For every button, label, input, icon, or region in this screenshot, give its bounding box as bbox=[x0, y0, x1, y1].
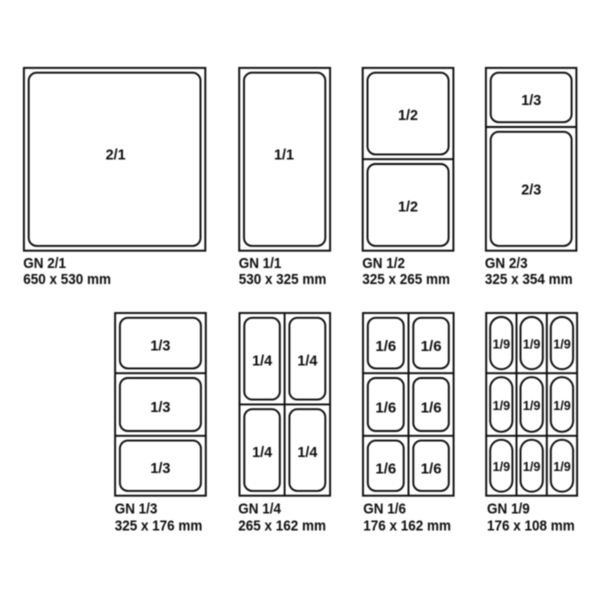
svg-text:325 x 176 mm: 325 x 176 mm bbox=[115, 517, 203, 534]
svg-text:1/9: 1/9 bbox=[523, 336, 541, 351]
svg-text:1/9: 1/9 bbox=[493, 398, 511, 413]
svg-text:1/3: 1/3 bbox=[150, 461, 170, 477]
svg-text:1/6: 1/6 bbox=[375, 338, 396, 355]
svg-text:1/9: 1/9 bbox=[493, 336, 511, 351]
svg-text:GN 1/2: GN 1/2 bbox=[362, 254, 405, 271]
svg-text:265 x 162 mm: 265 x 162 mm bbox=[238, 517, 326, 534]
svg-text:1/2: 1/2 bbox=[398, 199, 418, 215]
svg-text:1/3: 1/3 bbox=[521, 93, 541, 109]
svg-text:1/9: 1/9 bbox=[553, 398, 571, 413]
svg-text:176 x 162 mm: 176 x 162 mm bbox=[363, 517, 451, 534]
svg-text:2/3: 2/3 bbox=[521, 182, 541, 198]
svg-text:1/6: 1/6 bbox=[421, 338, 442, 355]
svg-text:1/9: 1/9 bbox=[493, 459, 511, 474]
svg-text:1/3: 1/3 bbox=[150, 338, 170, 354]
svg-text:1/4: 1/4 bbox=[252, 353, 273, 369]
svg-text:1/9: 1/9 bbox=[523, 459, 541, 474]
svg-text:1/3: 1/3 bbox=[150, 400, 170, 416]
svg-text:1/2: 1/2 bbox=[398, 108, 418, 124]
svg-text:325 x 265 mm: 325 x 265 mm bbox=[362, 271, 450, 288]
svg-text:1/9: 1/9 bbox=[523, 398, 541, 413]
svg-text:GN 1/9: GN 1/9 bbox=[487, 500, 530, 517]
svg-text:GN 1/4: GN 1/4 bbox=[238, 500, 281, 517]
svg-text:1/4: 1/4 bbox=[252, 445, 273, 461]
svg-text:530 x 325 mm: 530 x 325 mm bbox=[239, 271, 327, 288]
svg-text:1/6: 1/6 bbox=[375, 399, 396, 416]
svg-text:1/1: 1/1 bbox=[274, 147, 294, 163]
svg-text:1/9: 1/9 bbox=[553, 336, 571, 351]
svg-text:1/4: 1/4 bbox=[297, 445, 318, 461]
svg-text:1/4: 1/4 bbox=[297, 353, 318, 369]
svg-text:GN 2/1: GN 2/1 bbox=[23, 254, 66, 271]
svg-text:1/6: 1/6 bbox=[421, 461, 442, 478]
svg-text:GN 1/1: GN 1/1 bbox=[239, 254, 282, 271]
svg-text:176 x 108 mm: 176 x 108 mm bbox=[487, 517, 575, 534]
svg-text:GN 1/3: GN 1/3 bbox=[115, 500, 158, 517]
svg-text:GN 1/6: GN 1/6 bbox=[363, 500, 406, 517]
svg-text:650 x 530 mm: 650 x 530 mm bbox=[23, 271, 111, 288]
svg-text:1/6: 1/6 bbox=[375, 461, 396, 478]
svg-text:1/6: 1/6 bbox=[421, 399, 442, 416]
svg-text:325 x 354 mm: 325 x 354 mm bbox=[485, 271, 573, 288]
svg-text:2/1: 2/1 bbox=[106, 147, 126, 163]
svg-text:GN 2/3: GN 2/3 bbox=[485, 254, 528, 271]
svg-text:1/9: 1/9 bbox=[553, 459, 571, 474]
